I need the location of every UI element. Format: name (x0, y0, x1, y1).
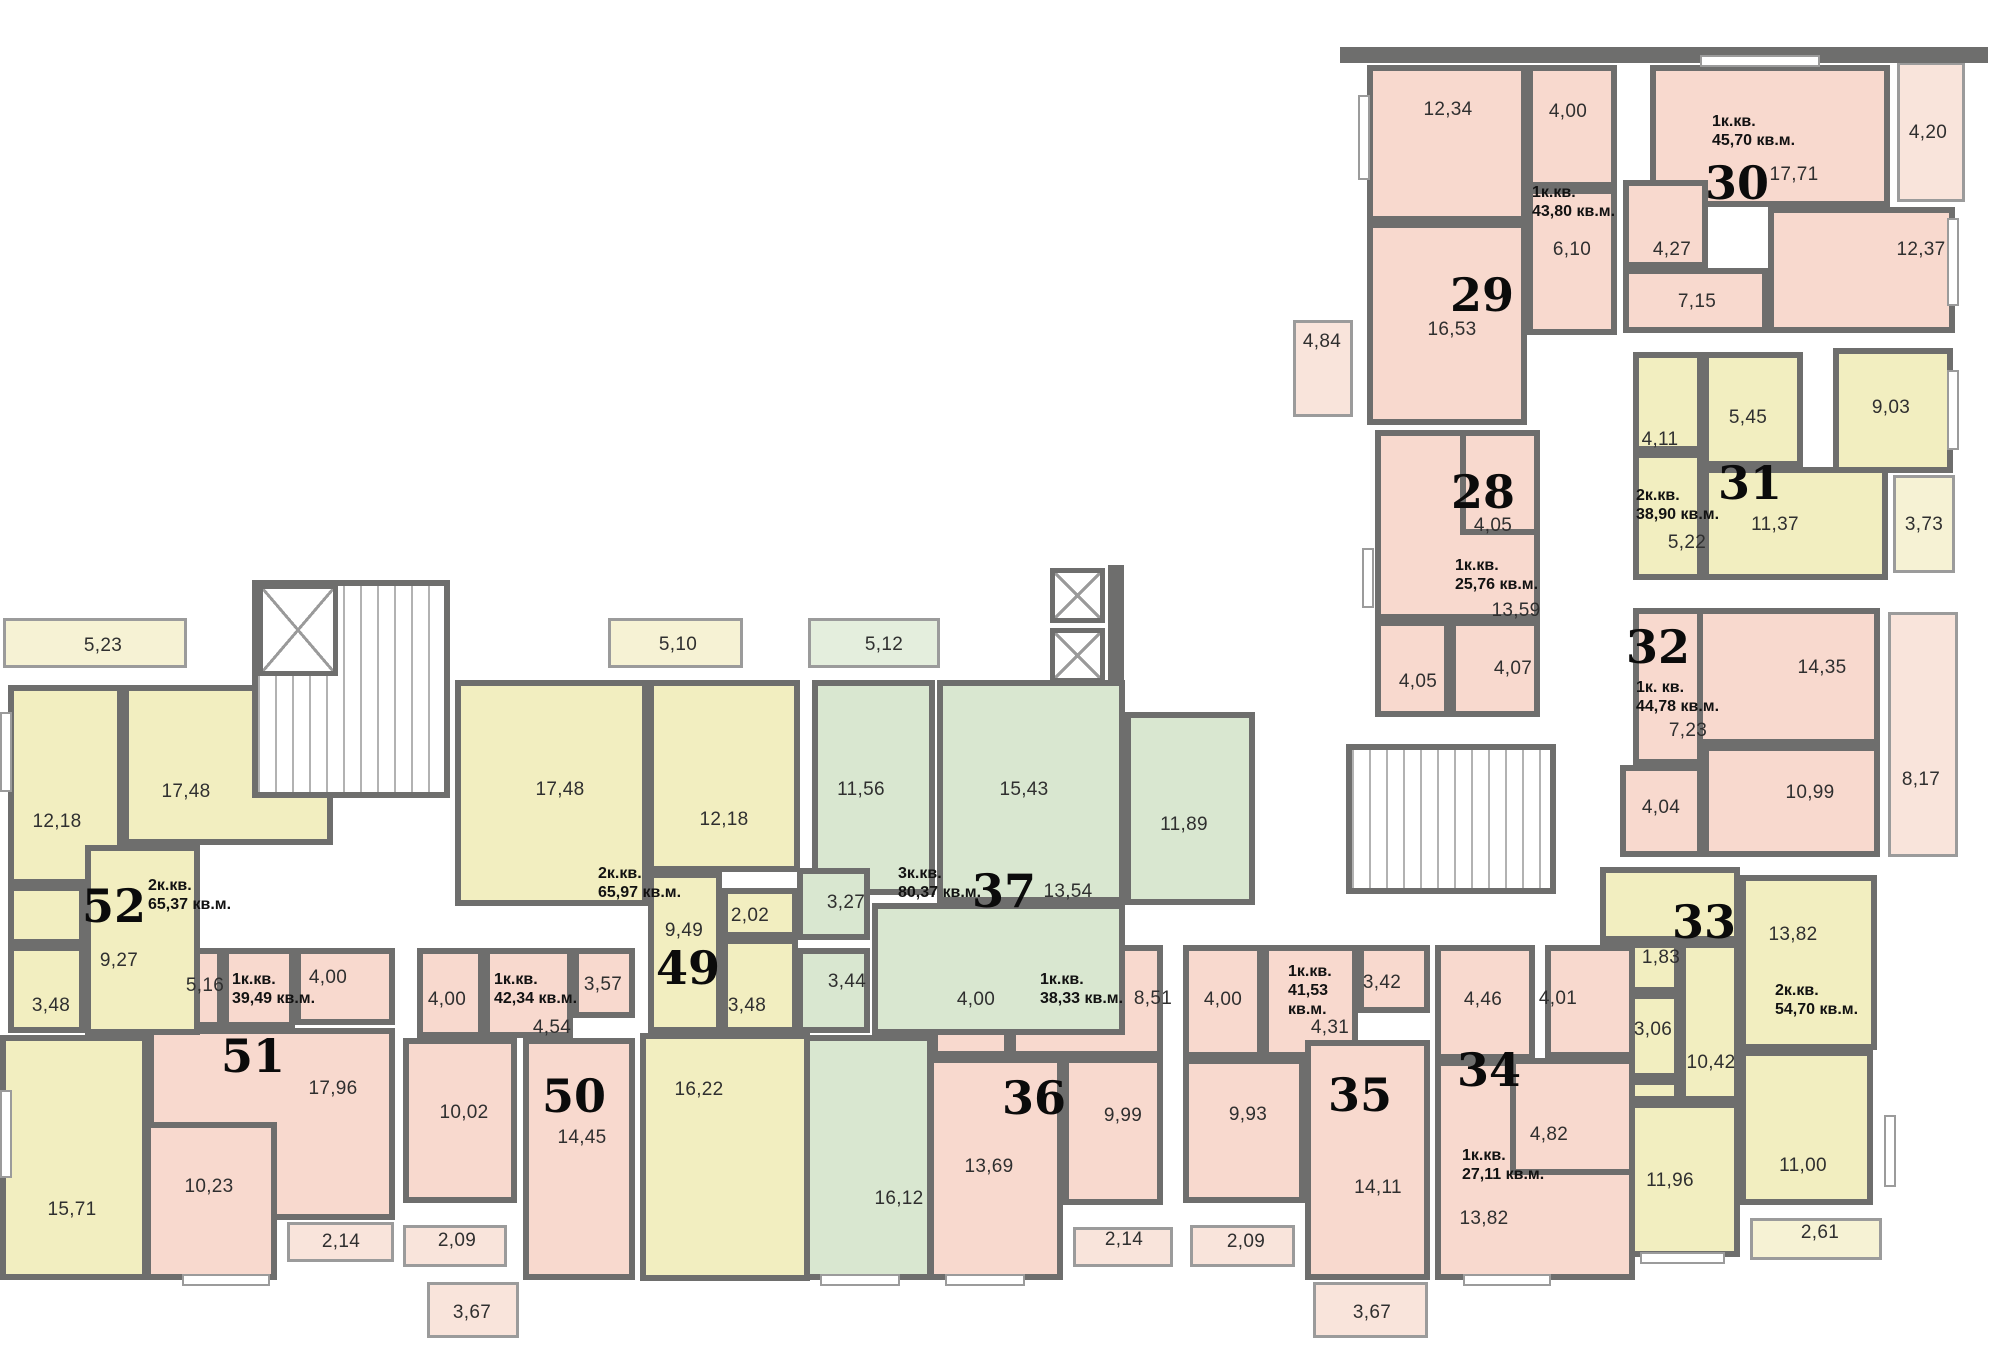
apt-37-area-label: 3,27 (827, 892, 865, 914)
window (0, 1090, 12, 1178)
apt-30-area-label: 12,37 (1896, 239, 1945, 261)
floor-plan: 12,344,006,1016,534,84291к.кв.43,80 кв.м… (0, 0, 2000, 1358)
apt-37-area-label: 13,54 (1043, 881, 1092, 903)
apt-36-area-label: 2,14 (1105, 1229, 1143, 1251)
apt-49-area-label: 16,22 (674, 1079, 723, 1101)
apt-34-area-label: 13,82 (1459, 1208, 1508, 1230)
apt-33-area-label: 1,83 (1642, 947, 1680, 969)
apt-37-room (797, 1035, 933, 1280)
apt-30-area-label: 17,71 (1769, 164, 1818, 186)
apt-35-area-label: 3,67 (1353, 1302, 1391, 1324)
apt-31-area-label: 5,22 (1668, 532, 1706, 554)
apt-34-number: 34 (1457, 1043, 1521, 1097)
wall (1108, 565, 1124, 685)
apt-29-area-label: 12,34 (1423, 99, 1472, 121)
apt-52-area-label: 9,27 (100, 950, 138, 972)
apt-51-room (145, 1122, 277, 1280)
apt-28-area-label: 4,07 (1494, 658, 1532, 680)
apt-52-area-label: 15,71 (47, 1199, 96, 1221)
apt-49-area-label: 9,49 (665, 920, 703, 942)
apt-29-room (1527, 65, 1617, 188)
apt-29-number: 29 (1450, 268, 1514, 322)
apt-49-area-label: 12,18 (699, 809, 748, 831)
apt-49-room (640, 1033, 810, 1281)
apt-37-type-label: 3к.кв.80,37 кв.м. (898, 864, 981, 902)
apt-28-area-label: 4,05 (1399, 671, 1437, 693)
apt-33-area-label: 10,42 (1686, 1052, 1735, 1074)
apt-31-type-label: 2к.кв.38,90 кв.м. (1636, 486, 1719, 524)
apt-31-number: 31 (1718, 456, 1782, 510)
apt-34-area-label: 4,82 (1530, 1124, 1568, 1146)
apt-51-area-label: 2,14 (322, 1231, 360, 1253)
apt-35-area-label: 4,31 (1311, 1017, 1349, 1039)
apt-33-area-label: 11,96 (1646, 1170, 1694, 1192)
apt-37-area-label: 15,43 (999, 779, 1048, 801)
apt-30-number: 30 (1705, 156, 1769, 210)
apt-28-room (1375, 620, 1450, 717)
apt-51-area-label: 17,96 (308, 1078, 357, 1100)
apt-29-area-label: 6,10 (1553, 239, 1591, 261)
apt-49-area-label: 3,48 (728, 995, 766, 1017)
apt-49-room (648, 680, 800, 872)
elevator-shaft (1050, 568, 1105, 623)
apt-32-area-label: 10,99 (1785, 782, 1834, 804)
window (182, 1274, 270, 1286)
apt-52-area-label: 5,23 (84, 635, 122, 657)
apt-52-area-label: 3,48 (32, 995, 70, 1017)
window (1640, 1252, 1725, 1264)
apt-33-area-label: 11,00 (1779, 1155, 1827, 1177)
apt-31-area-label: 5,45 (1729, 407, 1767, 429)
window (1884, 1115, 1896, 1187)
apt-51-area-label: 10,23 (184, 1176, 233, 1198)
apt-34-type-label: 1к.кв.27,11 кв.м. (1462, 1146, 1544, 1184)
apt-37-area-label: 11,56 (837, 779, 885, 801)
apt-36-area-label: 8,51 (1134, 988, 1172, 1010)
apt-37-number: 37 (972, 864, 1036, 918)
apt-32-area-label: 4,04 (1642, 797, 1680, 819)
apt-36-type-label: 1к.кв.38,33 кв.м. (1040, 970, 1123, 1008)
apt-52-number: 52 (82, 879, 146, 933)
apt-34-area-label: 4,46 (1464, 989, 1502, 1011)
apt-50-type-label: 1к.кв.42,34 кв.м. (494, 970, 577, 1008)
apt-52-room (8, 945, 85, 1033)
apt-50-area-label: 14,45 (557, 1127, 606, 1149)
window (820, 1274, 900, 1286)
apt-30-type-label: 1к.кв.45,70 кв.м. (1712, 112, 1795, 150)
apt-31-area-label: 11,37 (1751, 514, 1799, 536)
apt-32-room (1697, 608, 1880, 745)
window (1358, 95, 1370, 180)
apt-30-area-label: 4,27 (1653, 239, 1691, 261)
window (0, 712, 12, 792)
apt-37-area-label: 16,12 (874, 1188, 923, 1210)
apt-32-type-label: 1к. кв.44,78 кв.м. (1636, 678, 1719, 716)
apt-35-number: 35 (1328, 1068, 1392, 1122)
apt-49-room (722, 938, 798, 1033)
apt-35-area-label: 3,42 (1363, 972, 1401, 994)
apt-50-area-label: 3,57 (584, 974, 622, 996)
apt-50-area-label: 3,67 (453, 1302, 491, 1324)
apt-33-area-label: 2,61 (1801, 1222, 1839, 1244)
apt-30-area-label: 4,20 (1909, 122, 1947, 144)
apt-33-area-label: 3,06 (1634, 1019, 1672, 1041)
apt-29-area-label: 4,84 (1303, 331, 1341, 353)
apt-33-area-label: 13,82 (1768, 924, 1817, 946)
apt-28-type-label: 1к.кв.25,76 кв.м. (1455, 556, 1538, 594)
apt-36-area-label: 4,00 (957, 989, 995, 1011)
apt-32-number: 32 (1626, 620, 1690, 674)
window (1947, 370, 1959, 450)
apt-49-type-label: 2к.кв.65,97 кв.м. (598, 864, 681, 902)
apt-49-number: 49 (656, 941, 720, 995)
apt-52-room (85, 845, 200, 1035)
apt-32-area-label: 8,17 (1902, 769, 1940, 791)
apt-49-area-label: 5,10 (659, 634, 697, 656)
apt-28-number: 28 (1451, 465, 1515, 519)
apt-31-area-label: 3,73 (1905, 514, 1943, 536)
apt-34-area-label: 4,01 (1539, 988, 1577, 1010)
staircase (1346, 744, 1556, 894)
apt-52-area-label: 17,48 (161, 781, 210, 803)
apt-50-area-label: 10,02 (439, 1102, 488, 1124)
apt-37-area-label: 5,12 (865, 634, 903, 656)
apt-35-room (1183, 1058, 1305, 1203)
apt-36-number: 36 (1002, 1071, 1066, 1125)
window (1362, 548, 1374, 608)
apt-37-area-label: 3,44 (828, 971, 866, 993)
apt-50-area-label: 4,00 (428, 989, 466, 1011)
apt-52-type-label: 2к.кв.65,37 кв.м. (148, 876, 231, 914)
apt-33-room (1740, 875, 1877, 1050)
window (1463, 1274, 1551, 1286)
elevator-shaft (258, 584, 338, 676)
apt-30-room (1768, 207, 1955, 333)
apt-32-balcony (1888, 612, 1958, 857)
apt-35-area-label: 2,09 (1227, 1231, 1265, 1253)
apt-32-area-label: 7,23 (1669, 720, 1707, 742)
apt-49-area-label: 17,48 (535, 779, 584, 801)
apt-35-area-label: 9,93 (1229, 1104, 1267, 1126)
apt-35-area-label: 14,11 (1354, 1177, 1402, 1199)
apt-32-area-label: 14,35 (1797, 657, 1846, 679)
apt-52-room (0, 1035, 148, 1280)
apt-28-area-label: 13,59 (1491, 600, 1540, 622)
window (1700, 55, 1820, 67)
apt-51-type-label: 1к.кв.39,49 кв.м. (232, 970, 315, 1008)
apt-37-area-label: 11,89 (1160, 814, 1208, 836)
apt-29-area-label: 16,53 (1427, 319, 1476, 341)
apt-33-type-label: 2к.кв.54,70 кв.м. (1775, 981, 1858, 1019)
wall (1340, 47, 1988, 63)
apt-50-area-label: 2,09 (438, 1230, 476, 1252)
apt-52-room (8, 885, 85, 945)
apt-36-area-label: 9,99 (1104, 1105, 1142, 1127)
apt-33-number: 33 (1672, 895, 1736, 949)
apt-36-room (1063, 1057, 1163, 1205)
apt-31-area-label: 4,11 (1642, 429, 1679, 451)
window (1947, 218, 1959, 306)
elevator-shaft (1050, 628, 1105, 683)
apt-33-room (1680, 942, 1740, 1102)
apt-29-type-label: 1к.кв.43,80 кв.м. (1532, 183, 1615, 221)
apt-36-area-label: 13,69 (964, 1156, 1013, 1178)
window (945, 1274, 1025, 1286)
apt-51-number: 51 (221, 1029, 285, 1083)
apt-49-area-label: 2,02 (731, 905, 769, 927)
apt-37-room (872, 903, 1125, 1035)
apt-35-area-label: 4,00 (1204, 989, 1242, 1011)
apt-33-room (1740, 1050, 1873, 1205)
apt-52-area-label: 12,18 (32, 811, 81, 833)
apt-31-area-label: 9,03 (1872, 397, 1910, 419)
apt-30-area-label: 7,15 (1678, 291, 1716, 313)
apt-35-type-label: 1к.кв.41,53кв.м. (1288, 962, 1332, 1019)
apt-50-area-label: 4,54 (533, 1017, 571, 1039)
apt-29-room (1367, 65, 1527, 222)
apt-50-number: 50 (542, 1069, 606, 1123)
apt-37-room (1125, 712, 1255, 905)
apt-51-area-label: 5,16 (186, 975, 224, 997)
apt-29-area-label: 4,00 (1549, 101, 1587, 123)
